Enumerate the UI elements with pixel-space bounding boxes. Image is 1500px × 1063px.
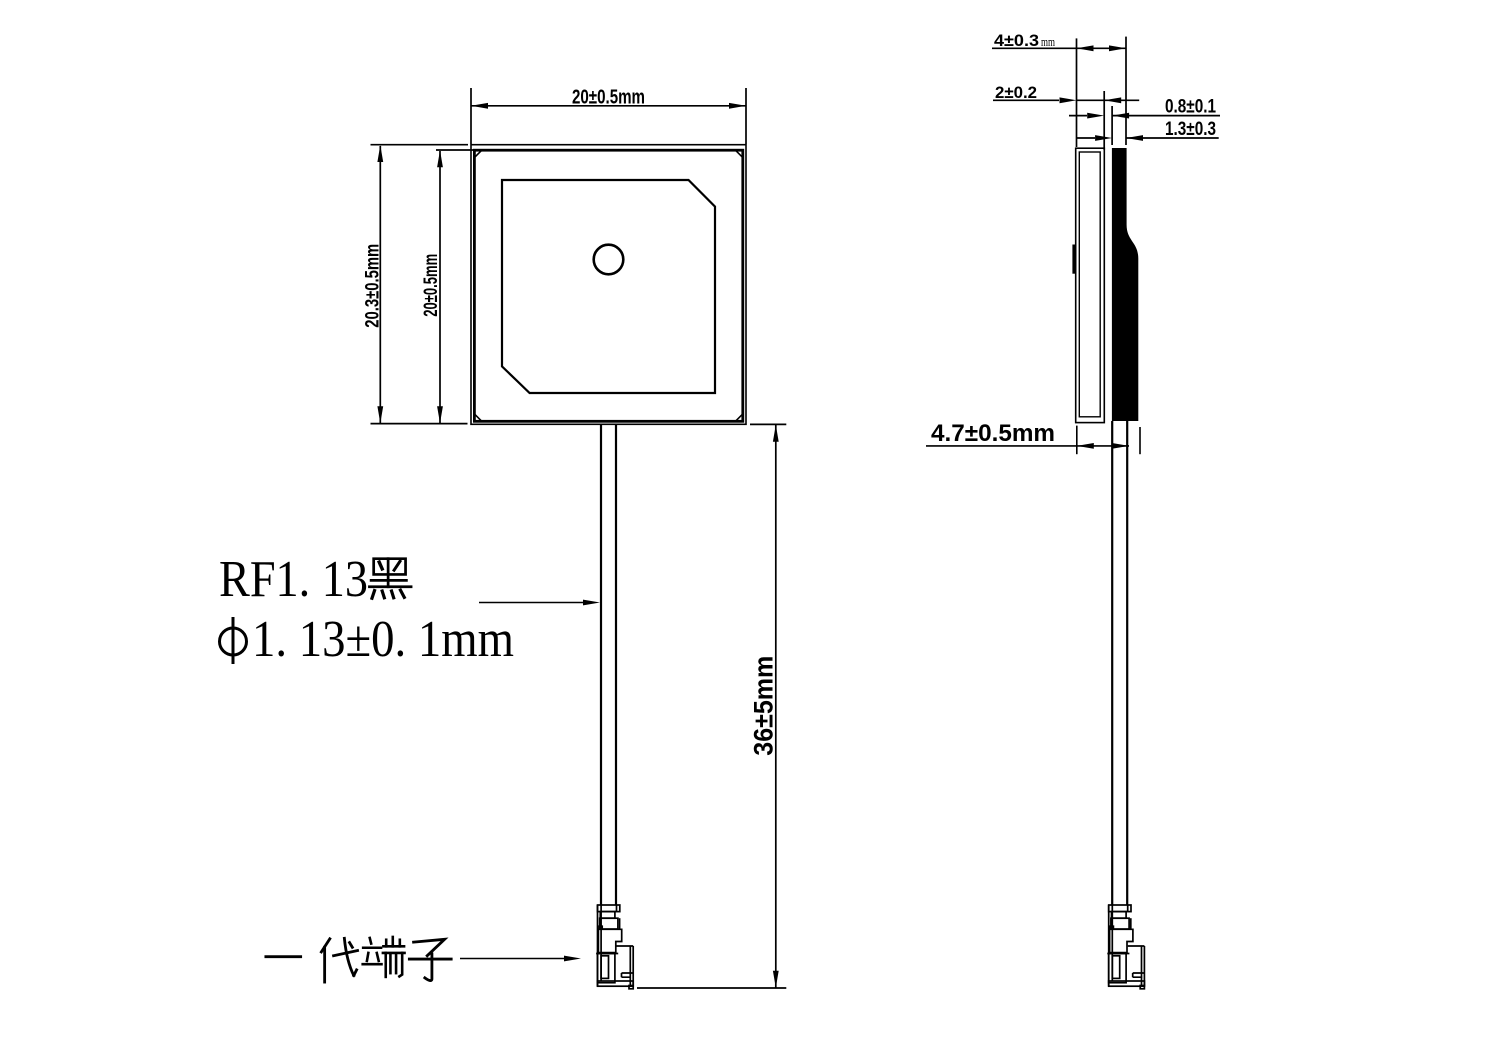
- svg-text:4.7±0.5mm: 4.7±0.5mm: [931, 420, 1055, 447]
- svg-text:20±0.5mm: 20±0.5mm: [572, 87, 645, 109]
- svg-text:1.3±0.3: 1.3±0.3: [1165, 119, 1216, 140]
- svg-text:36±5mm: 36±5mm: [749, 656, 779, 756]
- svg-text:RF1. 13: RF1. 13: [219, 551, 368, 608]
- svg-text:mm: mm: [1041, 34, 1055, 49]
- svg-text:1. 13±0. 1mm: 1. 13±0. 1mm: [252, 611, 514, 668]
- svg-text:20.3±0.5mm: 20.3±0.5mm: [363, 244, 384, 328]
- svg-text:2±0.2: 2±0.2: [995, 83, 1037, 102]
- svg-text:0.8±0.1: 0.8±0.1: [1165, 97, 1216, 118]
- svg-text:4±0.3: 4±0.3: [994, 31, 1039, 50]
- svg-text:20±0.5mm: 20±0.5mm: [421, 254, 442, 317]
